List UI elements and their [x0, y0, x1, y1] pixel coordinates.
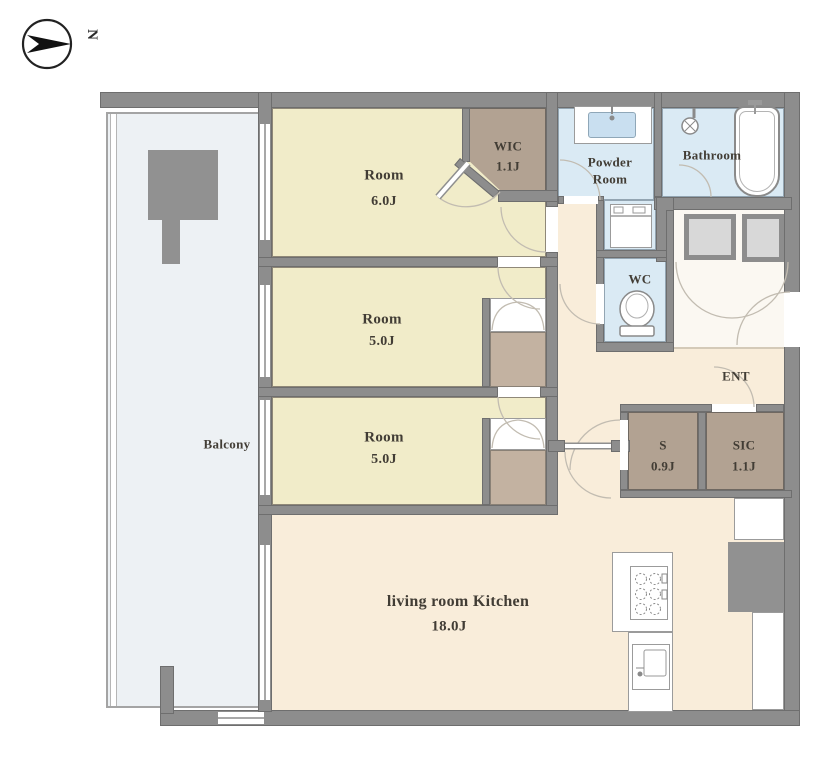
wall-s-top-left	[620, 404, 712, 412]
room-6-size: 6.0J	[371, 195, 397, 209]
wic-label: WIC	[494, 140, 522, 153]
powder-room-label-1: Powder	[588, 156, 632, 169]
window-room-6	[260, 124, 270, 240]
wall-s-bottom	[620, 490, 792, 498]
wall-wic-bottom	[498, 190, 558, 202]
storage-s-label: S	[659, 439, 667, 452]
door-gap-room-5b	[498, 387, 540, 397]
wall-hall-door-stub-left	[548, 440, 565, 452]
wc-label: WC	[629, 273, 652, 286]
kitchen-sink	[632, 644, 670, 690]
closet-5b-doors	[490, 418, 546, 450]
window-room-5a	[260, 285, 270, 377]
wall-bath-left	[654, 92, 662, 197]
wall-s-top-right	[756, 404, 784, 412]
wall-wc-left	[596, 200, 604, 352]
wall-rooms-right-lower	[546, 252, 558, 515]
wall-wic-left	[462, 108, 470, 162]
door-gap-room-5a	[498, 257, 540, 267]
front-door-gap	[784, 292, 800, 347]
balcony-drain-gap	[218, 712, 264, 724]
window-living	[260, 545, 270, 700]
room-5a-size: 5.0J	[369, 335, 395, 349]
floor-plan: N	[0, 0, 836, 762]
balcony-railing	[110, 114, 117, 706]
closet-5a-doors	[490, 298, 546, 332]
living-kitchen-area	[272, 515, 784, 712]
stove	[630, 566, 668, 620]
storage-s-size: 0.9J	[651, 460, 675, 473]
door-gap-room-6	[546, 207, 558, 252]
entrance-step	[674, 347, 784, 349]
door-gap-wc	[596, 284, 604, 324]
sic-label: SIC	[733, 439, 756, 452]
wall-divider-2-stub	[540, 387, 558, 397]
window-room-5b	[260, 400, 270, 495]
compass-icon	[14, 10, 88, 84]
wall-right	[784, 92, 800, 726]
sic-size: 1.1J	[732, 460, 756, 473]
door-gap-powder	[564, 196, 598, 204]
door-gap-storage-s	[620, 420, 628, 470]
room-6-label: Room	[364, 169, 404, 184]
pipe-space-1	[684, 214, 736, 260]
entrance-label: ENT	[722, 370, 750, 383]
balcony-pillar-stem	[162, 220, 180, 264]
wall-wc-bottom	[596, 342, 674, 352]
living-kitchen-size: 18.0J	[431, 620, 466, 635]
room-5a-label: Room	[362, 313, 402, 328]
pipe-space-2	[742, 214, 784, 262]
washing-machine-space	[610, 204, 652, 248]
room-5b-closet	[490, 450, 546, 505]
vanity-basin	[588, 112, 636, 138]
wall-divider-1-stub	[540, 257, 558, 267]
bathroom-label: Bathroom	[683, 149, 742, 162]
room-5b-label: Room	[364, 431, 404, 446]
living-kitchen-label: living room Kitchen	[387, 594, 529, 610]
wall-wc-right	[666, 210, 674, 347]
wic-size: 1.1J	[496, 160, 520, 173]
counter-strip	[752, 612, 784, 710]
wall-divider-1	[258, 257, 498, 267]
wall-balcony-stub	[160, 666, 174, 714]
compass-north-label: N	[83, 29, 100, 40]
wall-closet-5b-left	[482, 418, 490, 505]
room-5a-closet	[490, 332, 546, 387]
wall-s-sic-divider	[698, 412, 706, 490]
room-5b-size: 5.0J	[371, 453, 397, 467]
structural-pillar	[728, 542, 784, 612]
wall-bath-bottom	[654, 197, 792, 210]
wall-divider-2	[258, 387, 498, 397]
balcony-label: Balcony	[204, 438, 251, 451]
wall-closet-5a-left	[482, 298, 490, 387]
door-gap-sic	[712, 404, 756, 412]
wall-top	[100, 92, 792, 108]
powder-room-label-2: Room	[593, 173, 627, 186]
balcony-pillar	[148, 150, 218, 220]
entry-alcove	[734, 498, 784, 540]
wall-divider-3	[258, 505, 558, 515]
wall-wc-top	[596, 250, 674, 258]
compass	[14, 10, 88, 89]
